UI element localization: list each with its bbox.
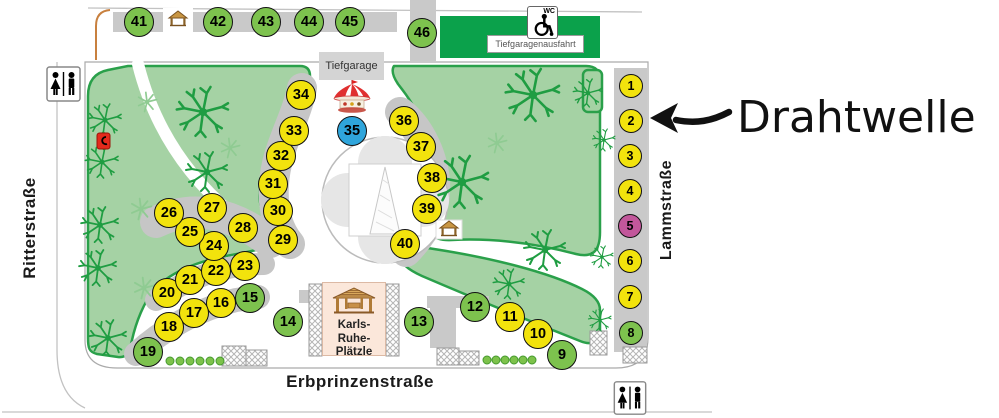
stall-marker-13: 13 <box>404 307 434 337</box>
stall-marker-39: 39 <box>412 194 442 224</box>
stall-marker-12: 12 <box>460 292 490 322</box>
stall-marker-27: 27 <box>197 193 227 223</box>
stall-marker-9: 9 <box>547 340 577 370</box>
stall-marker-14: 14 <box>273 307 303 337</box>
stall-markers: 1234567891011121314151617181920212223242… <box>0 0 999 418</box>
stall-marker-43: 43 <box>251 7 281 37</box>
stall-marker-41: 41 <box>124 7 154 37</box>
stall-marker-38: 38 <box>417 163 447 193</box>
stall-marker-36: 36 <box>389 106 419 136</box>
stall-marker-5: 5 <box>618 214 642 238</box>
stall-marker-29: 29 <box>268 225 298 255</box>
stall-marker-2: 2 <box>619 109 643 133</box>
market-map: Ritterstraße Lammstraße Erbprinzenstraße… <box>0 0 999 418</box>
stall-marker-44: 44 <box>294 7 324 37</box>
stall-marker-37: 37 <box>406 132 436 162</box>
stall-marker-10: 10 <box>523 319 553 349</box>
stall-marker-35: 35 <box>337 116 367 146</box>
stall-marker-8: 8 <box>619 321 643 345</box>
stall-marker-28: 28 <box>228 213 258 243</box>
stall-marker-26: 26 <box>154 198 184 228</box>
stall-marker-19: 19 <box>133 337 163 367</box>
stall-marker-6: 6 <box>618 249 642 273</box>
stall-marker-31: 31 <box>258 169 288 199</box>
stall-marker-33: 33 <box>279 116 309 146</box>
stall-marker-34: 34 <box>286 80 316 110</box>
stall-marker-42: 42 <box>203 7 233 37</box>
stall-marker-1: 1 <box>619 74 643 98</box>
stall-marker-16: 16 <box>206 288 236 318</box>
stall-marker-40: 40 <box>390 229 420 259</box>
stall-marker-18: 18 <box>154 312 184 342</box>
stall-marker-46: 46 <box>407 18 437 48</box>
stall-marker-11: 11 <box>495 302 525 332</box>
stall-marker-3: 3 <box>618 144 642 168</box>
stall-marker-23: 23 <box>230 251 260 281</box>
stall-marker-4: 4 <box>618 179 642 203</box>
stall-marker-7: 7 <box>618 285 642 309</box>
stall-marker-15: 15 <box>235 283 265 313</box>
stall-marker-45: 45 <box>335 7 365 37</box>
stall-marker-30: 30 <box>263 196 293 226</box>
